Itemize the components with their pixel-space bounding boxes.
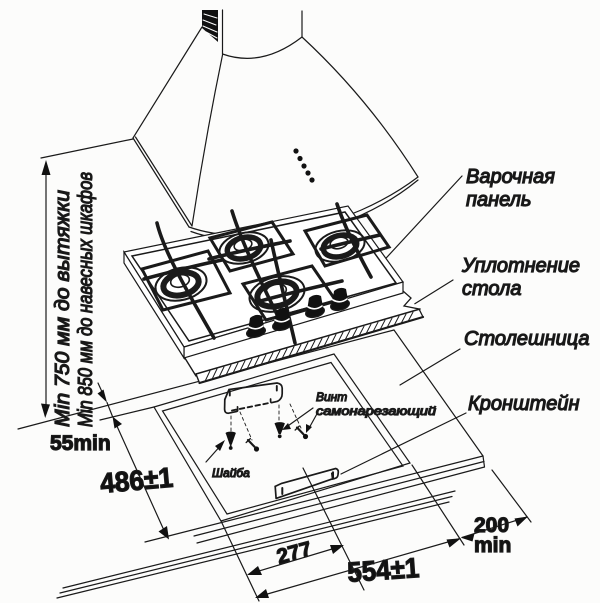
svg-text:Кронштейн: Кронштейн	[468, 393, 580, 415]
svg-text:Варочная: Варочная	[466, 166, 555, 188]
svg-text:Шайба: Шайба	[212, 466, 250, 480]
svg-text:554±1: 554±1	[346, 552, 420, 588]
svg-text:Винт: Винт	[316, 390, 347, 404]
svg-text:стола: стола	[462, 278, 522, 300]
svg-text:55min: 55min	[50, 432, 111, 455]
svg-text:Уплотнение: Уплотнение	[461, 255, 580, 277]
svg-text:панель: панель	[466, 189, 531, 211]
svg-text:Столешница: Столешница	[464, 328, 589, 350]
svg-text:486±1: 486±1	[99, 462, 174, 499]
svg-text:min: min	[474, 534, 511, 557]
svg-text:Min 750 мм до вытяжки: Min 750 мм до вытяжки	[52, 190, 74, 427]
svg-text:Min 850 мм до навесных шкафов: Min 850 мм до навесных шкафов	[75, 172, 97, 427]
svg-text:самонарезающий: самонарезающий	[316, 404, 436, 418]
